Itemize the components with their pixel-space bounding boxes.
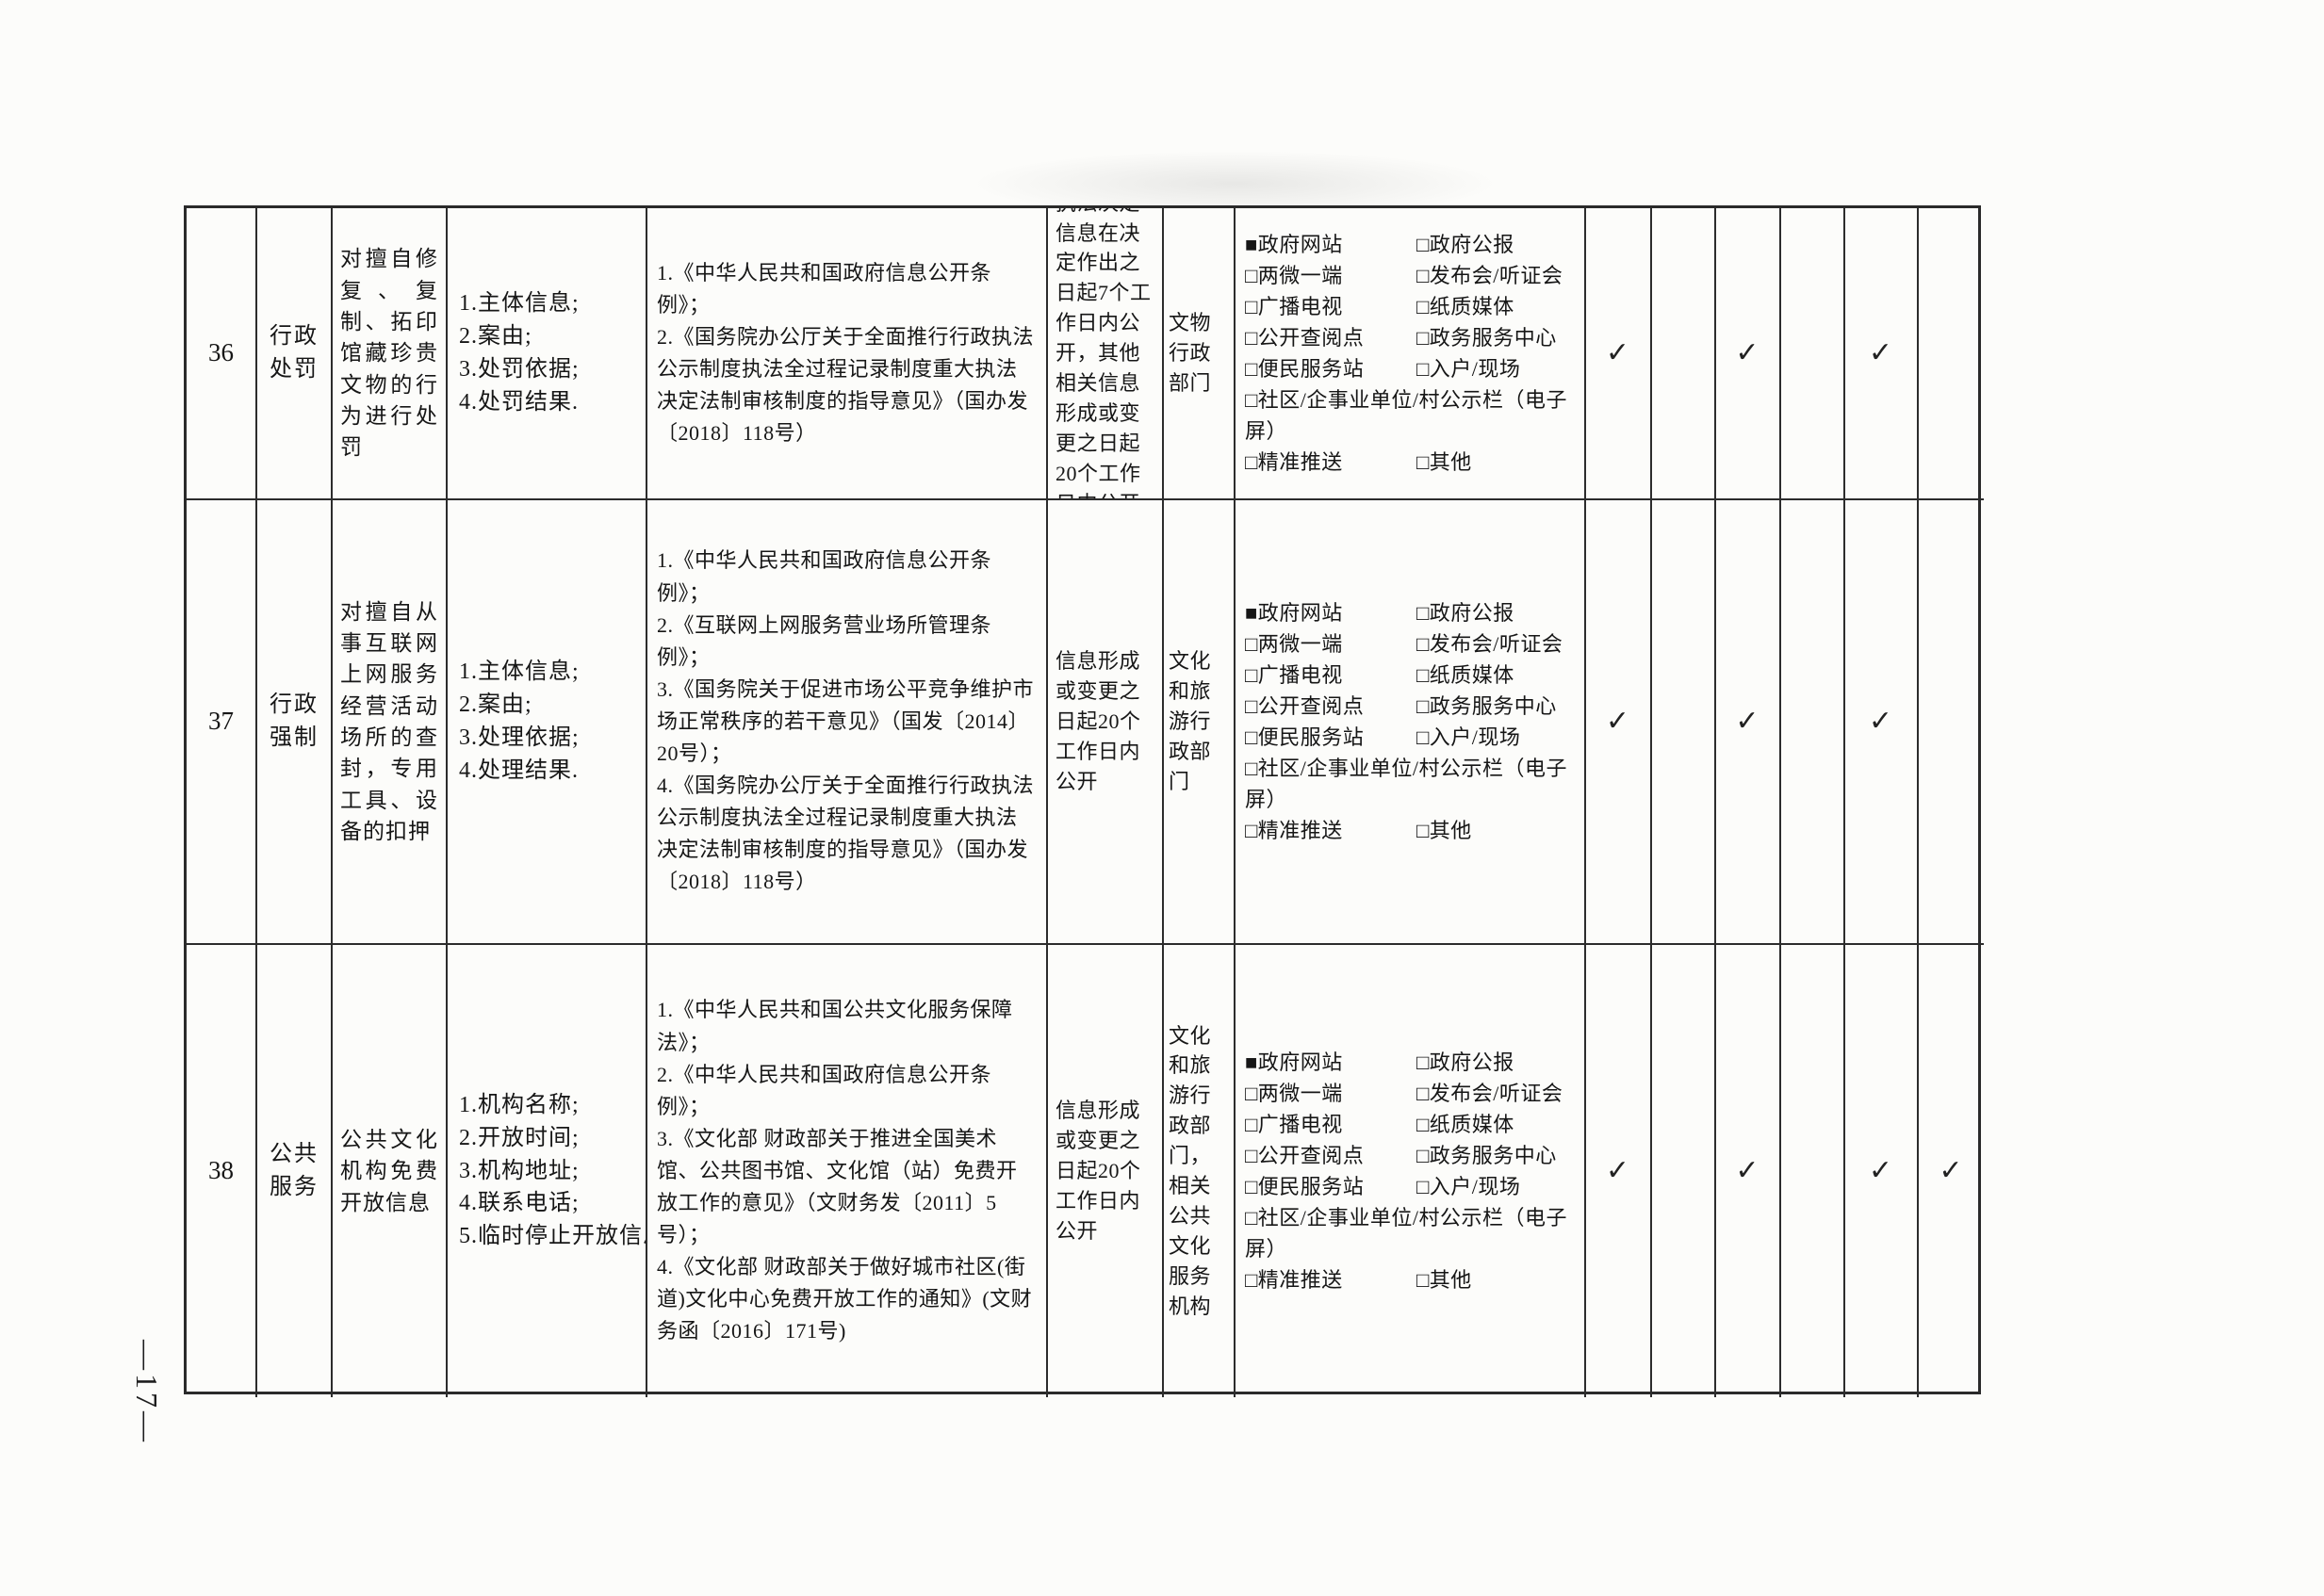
channel-option: □发布会/听证会 [1416, 1078, 1580, 1109]
channel-option-line: □便民服务站 □入户/现场 [1245, 722, 1580, 753]
channel-option: □精准推送 [1245, 447, 1416, 478]
mark-cell: ✓ [1586, 208, 1652, 500]
seq-cell: 36 [187, 208, 257, 500]
channel-option: □公开查阅点 [1245, 691, 1416, 722]
channel-option: □入户/现场 [1416, 1171, 1580, 1202]
item-text: 对擅自从事互联网上网服务经营活动场所的查封，专用工具、设备的扣押 [340, 596, 438, 848]
channel-option: □两微一端 [1245, 260, 1416, 291]
channel-option: □政务服务中心 [1416, 1140, 1580, 1171]
channel-option: □广播电视 [1245, 291, 1416, 322]
channel-option: ■政府网站 [1245, 1047, 1416, 1078]
content-line: 4.处罚结果. [459, 386, 640, 419]
channel-option: □广播电视 [1245, 660, 1416, 691]
channel-option: ■政府网站 [1245, 597, 1416, 628]
basis-item: 4.《文化部 财政部关于做好城市社区(街道)文化中心免费开放工作的通知》(文财务… [657, 1251, 1037, 1347]
content-line: 2.开放时间; [459, 1122, 640, 1155]
channel-option-line: □两微一端 □发布会/听证会 [1245, 1078, 1580, 1109]
channel-option-line: □公开查阅点 □政务服务中心 [1245, 322, 1580, 353]
category-cell: 行政强制 [257, 500, 333, 945]
channel-option-line: □便民服务站 □入户/现场 [1245, 1171, 1580, 1202]
timing-text: 执法决定信息在决定作出之日起7个工作日内公开，其他相关信息形成或变更之日起20个… [1056, 208, 1154, 500]
channel-option: □入户/现场 [1416, 722, 1580, 753]
mark-cell: ✓ [1919, 945, 1984, 1397]
content-line: 4.联系电话; [459, 1187, 640, 1220]
seq-cell: 37 [187, 500, 257, 945]
category-label: 行政强制 [269, 689, 319, 755]
responsible-cell: 文化和旅游行政部门 [1164, 500, 1236, 945]
basis-item: 2.《国务院办公厅关于全面推行行政执法公示制度执法全过程记录制度重大执法决定法制… [657, 321, 1037, 449]
content-line: 1.主体信息; [459, 287, 640, 320]
category-cell: 行政处罚 [257, 208, 333, 500]
content-line: 2.案由; [459, 689, 640, 722]
mark-cell [1919, 500, 1984, 945]
channels-cell: ■政府网站 □政府公报 □两微一端 □发布会/听证会 □广播电视 □纸质媒体 □… [1236, 500, 1586, 945]
mark-cell: ✓ [1845, 945, 1919, 1397]
channel-option: □纸质媒体 [1416, 291, 1580, 322]
channel-option-line: □广播电视 □纸质媒体 [1245, 1109, 1580, 1140]
channel-option: □便民服务站 [1245, 1171, 1416, 1202]
channel-option: □公开查阅点 [1245, 1140, 1416, 1171]
channel-option-line: ■政府网站 □政府公报 [1245, 229, 1580, 260]
channels-cell: ■政府网站 □政府公报 □两微一端 □发布会/听证会 □广播电视 □纸质媒体 □… [1236, 945, 1586, 1397]
responsible-text: 文化和旅游行政部门，相关公共文化服务机构 [1169, 1021, 1229, 1322]
timing-cell: 信息形成或变更之日起20个工作日内公开 [1048, 945, 1164, 1397]
channel-option: □精准推送 [1245, 1264, 1416, 1295]
channel-option: □广播电视 [1245, 1109, 1416, 1140]
channel-option: □便民服务站 [1245, 353, 1416, 384]
item-cell: 对擅自从事互联网上网服务经营活动场所的查封，专用工具、设备的扣押 [333, 500, 448, 945]
channel-option-line: □社区/企事业单位/村公示栏（电子屏） [1245, 384, 1580, 447]
seq-cell: 38 [187, 945, 257, 1397]
channel-option: □精准推送 [1245, 815, 1416, 846]
channel-option-line: □精准推送 □其他 [1245, 447, 1580, 478]
channel-option-line: □便民服务站 □入户/现场 [1245, 353, 1580, 384]
channel-option: □其他 [1416, 447, 1580, 478]
mark-cell [1652, 208, 1716, 500]
scanned-page: —17— 36 行政处罚 对擅自修复、复制、拓印馆藏珍贵文物的行为进行处罚 1.… [0, 0, 2324, 1596]
channel-option-line: □两微一端 □发布会/听证会 [1245, 628, 1580, 660]
channel-option: ■政府网站 [1245, 229, 1416, 260]
channel-option-line: □精准推送 □其他 [1245, 815, 1580, 846]
channel-option-line: □两微一端 □发布会/听证会 [1245, 260, 1580, 291]
channel-option-line: ■政府网站 □政府公报 [1245, 1047, 1580, 1078]
legal-basis-cell: 1.《中华人民共和国政府信息公开条例》； 2.《互联网上网服务营业场所管理条例》… [647, 500, 1048, 945]
timing-text: 信息形成或变更之日起20个工作日内公开 [1056, 1096, 1154, 1246]
category-label: 公共服务 [269, 1138, 319, 1204]
basis-item: 4.《国务院办公厅关于全面推行行政执法公示制度执法全过程记录制度重大执法决定法制… [657, 770, 1037, 898]
checkmark: ✓ [1735, 1150, 1759, 1192]
mark-cell: ✓ [1716, 208, 1781, 500]
content-line: 1.主体信息; [459, 656, 640, 689]
row-number: 37 [208, 703, 234, 740]
mark-cell [1781, 500, 1845, 945]
responsible-cell: 文物行政部门 [1164, 208, 1236, 500]
mark-cell: ✓ [1845, 500, 1919, 945]
channel-option: □纸质媒体 [1416, 660, 1580, 691]
category-cell: 公共服务 [257, 945, 333, 1397]
disclosure-table: 36 行政处罚 对擅自修复、复制、拓印馆藏珍贵文物的行为进行处罚 1.主体信息;… [184, 205, 1981, 1394]
checkmark: ✓ [1869, 701, 1893, 742]
channel-option: □发布会/听证会 [1416, 628, 1580, 660]
channels-cell: ■政府网站 □政府公报 □两微一端 □发布会/听证会 □广播电视 □纸质媒体 □… [1236, 208, 1586, 500]
legal-basis-cell: 1.《中华人民共和国公共文化服务保障法》； 2.《中华人民共和国政府信息公开条例… [647, 945, 1048, 1397]
row-number: 38 [208, 1152, 234, 1189]
legal-basis-cell: 1.《中华人民共和国政府信息公开条例》； 2.《国务院办公厅关于全面推行行政执法… [647, 208, 1048, 500]
channel-option: □纸质媒体 [1416, 1109, 1580, 1140]
responsible-text: 文物行政部门 [1169, 308, 1229, 399]
row-number: 36 [208, 334, 234, 371]
mark-cell: ✓ [1716, 945, 1781, 1397]
content-cell: 1.主体信息; 2.案由; 3.处理依据; 4.处理结果. [448, 500, 647, 945]
channel-option: □发布会/听证会 [1416, 260, 1580, 291]
basis-item: 3.《文化部 财政部关于推进全国美术馆、公共图书馆、文化馆（站）免费开放工作的意… [657, 1123, 1037, 1251]
basis-item: 1.《中华人民共和国政府信息公开条例》； [657, 257, 1037, 321]
channel-option-line: □公开查阅点 □政务服务中心 [1245, 1140, 1580, 1171]
content-cell: 1.主体信息; 2.案由; 3.处罚依据; 4.处罚结果. [448, 208, 647, 500]
channel-option-line: □精准推送 □其他 [1245, 1264, 1580, 1295]
channel-option: □政府公报 [1416, 229, 1580, 260]
channel-option: □政务服务中心 [1416, 691, 1580, 722]
checkmark: ✓ [1869, 1150, 1893, 1192]
channel-option: □公开查阅点 [1245, 322, 1416, 353]
item-text: 对擅自修复、复制、拓印馆藏珍贵文物的行为进行处罚 [340, 243, 438, 463]
channel-option: □两微一端 [1245, 1078, 1416, 1109]
channel-option: □其他 [1416, 1264, 1580, 1295]
basis-item: 3.《国务院关于促进市场公平竞争维护市场正常秩序的若干意见》（国发〔2014〕2… [657, 674, 1037, 770]
content-cell: 1.机构名称; 2.开放时间; 3.机构地址; 4.联系电话; 5.临时停止开放… [448, 945, 647, 1397]
channel-option: □社区/企事业单位/村公示栏（电子屏） [1245, 388, 1567, 443]
channel-option-line: ■政府网站 □政府公报 [1245, 597, 1580, 628]
content-line: 2.案由; [459, 320, 640, 353]
mark-cell [1652, 945, 1716, 1397]
content-line: 1.机构名称; [459, 1089, 640, 1122]
channel-option: □社区/企事业单位/村公示栏（电子屏） [1245, 1206, 1567, 1261]
mark-cell: ✓ [1586, 500, 1652, 945]
channel-option-line: □公开查阅点 □政务服务中心 [1245, 691, 1580, 722]
content-line: 3.处罚依据; [459, 353, 640, 386]
channel-option: □便民服务站 [1245, 722, 1416, 753]
timing-cell: 信息形成或变更之日起20个工作日内公开 [1048, 500, 1164, 945]
checkmark: ✓ [1869, 333, 1893, 374]
content-line: 3.处理依据; [459, 722, 640, 755]
checkmark: ✓ [1606, 1150, 1630, 1192]
checkmark: ✓ [1606, 701, 1630, 742]
content-line: 4.处理结果. [459, 755, 640, 788]
responsible-text: 文化和旅游行政部门 [1169, 646, 1229, 796]
basis-item: 2.《中华人民共和国政府信息公开条例》； [657, 1059, 1037, 1123]
channel-option-line: □广播电视 □纸质媒体 [1245, 291, 1580, 322]
mark-cell: ✓ [1586, 945, 1652, 1397]
channel-option: □政府公报 [1416, 597, 1580, 628]
channel-option: □政府公报 [1416, 1047, 1580, 1078]
category-label: 行政处罚 [269, 320, 319, 386]
basis-item: 1.《中华人民共和国公共文化服务保障法》； [657, 994, 1037, 1058]
channel-option-line: □广播电视 □纸质媒体 [1245, 660, 1580, 691]
timing-text: 信息形成或变更之日起20个工作日内公开 [1056, 646, 1154, 796]
content-line: 5.临时停止开放信息. [459, 1220, 640, 1253]
responsible-cell: 文化和旅游行政部门，相关公共文化服务机构 [1164, 945, 1236, 1397]
checkmark: ✓ [1735, 701, 1759, 742]
channel-option: □其他 [1416, 815, 1580, 846]
mark-cell [1652, 500, 1716, 945]
channel-option-line: □社区/企事业单位/村公示栏（电子屏） [1245, 753, 1580, 815]
checkmark: ✓ [1939, 1150, 1963, 1192]
item-cell: 公共文化机构免费开放信息 [333, 945, 448, 1397]
channel-option: □入户/现场 [1416, 353, 1580, 384]
content-line: 3.机构地址; [459, 1155, 640, 1188]
basis-item: 1.《中华人民共和国政府信息公开条例》； [657, 545, 1037, 609]
checkmark: ✓ [1606, 333, 1630, 374]
mark-cell [1781, 208, 1845, 500]
item-text: 公共文化机构免费开放信息 [340, 1124, 438, 1218]
mark-cell [1919, 208, 1984, 500]
mark-cell: ✓ [1845, 208, 1919, 500]
channel-option: □两微一端 [1245, 628, 1416, 660]
channel-option-line: □社区/企事业单位/村公示栏（电子屏） [1245, 1202, 1580, 1264]
item-cell: 对擅自修复、复制、拓印馆藏珍贵文物的行为进行处罚 [333, 208, 448, 500]
channel-option: □政务服务中心 [1416, 322, 1580, 353]
channel-option: □社区/企事业单位/村公示栏（电子屏） [1245, 757, 1567, 811]
basis-item: 2.《互联网上网服务营业场所管理条例》； [657, 610, 1037, 674]
mark-cell [1781, 945, 1845, 1397]
mark-cell: ✓ [1716, 500, 1781, 945]
checkmark: ✓ [1735, 333, 1759, 374]
timing-cell: 执法决定信息在决定作出之日起7个工作日内公开，其他相关信息形成或变更之日起20个… [1048, 208, 1164, 500]
